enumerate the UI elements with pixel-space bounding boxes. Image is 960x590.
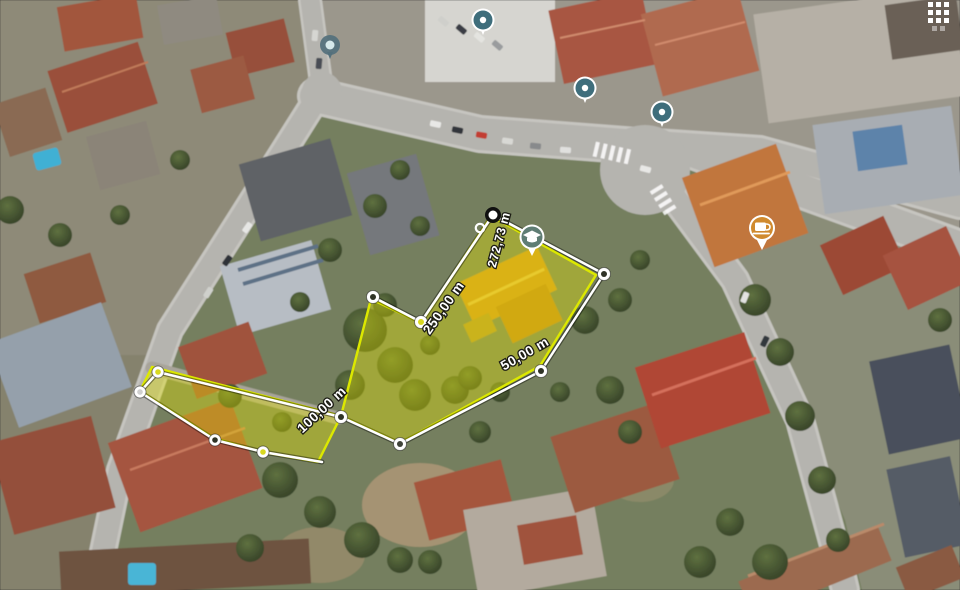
measure-vertex-handle[interactable] (257, 446, 269, 458)
measure-vertex-handle[interactable] (535, 365, 548, 378)
circle-dot-icon (659, 109, 665, 115)
circle-dot-icon (480, 17, 486, 23)
measure-vertex-handle[interactable] (598, 268, 611, 281)
measure-vertex-handle[interactable] (335, 411, 348, 424)
circle-dot-icon (582, 85, 588, 91)
measure-vertex-handle[interactable] (134, 386, 146, 398)
measure-vertex-handle[interactable] (209, 434, 221, 446)
measure-vertex-handle[interactable] (394, 438, 407, 451)
dot-icon (326, 41, 335, 50)
map-canvas[interactable]: 272,73 m 250,00 m 100,00 m 50,00 m (0, 0, 960, 590)
measure-vertex-handle[interactable] (152, 366, 164, 378)
measure-vertex-handle[interactable] (367, 291, 380, 304)
